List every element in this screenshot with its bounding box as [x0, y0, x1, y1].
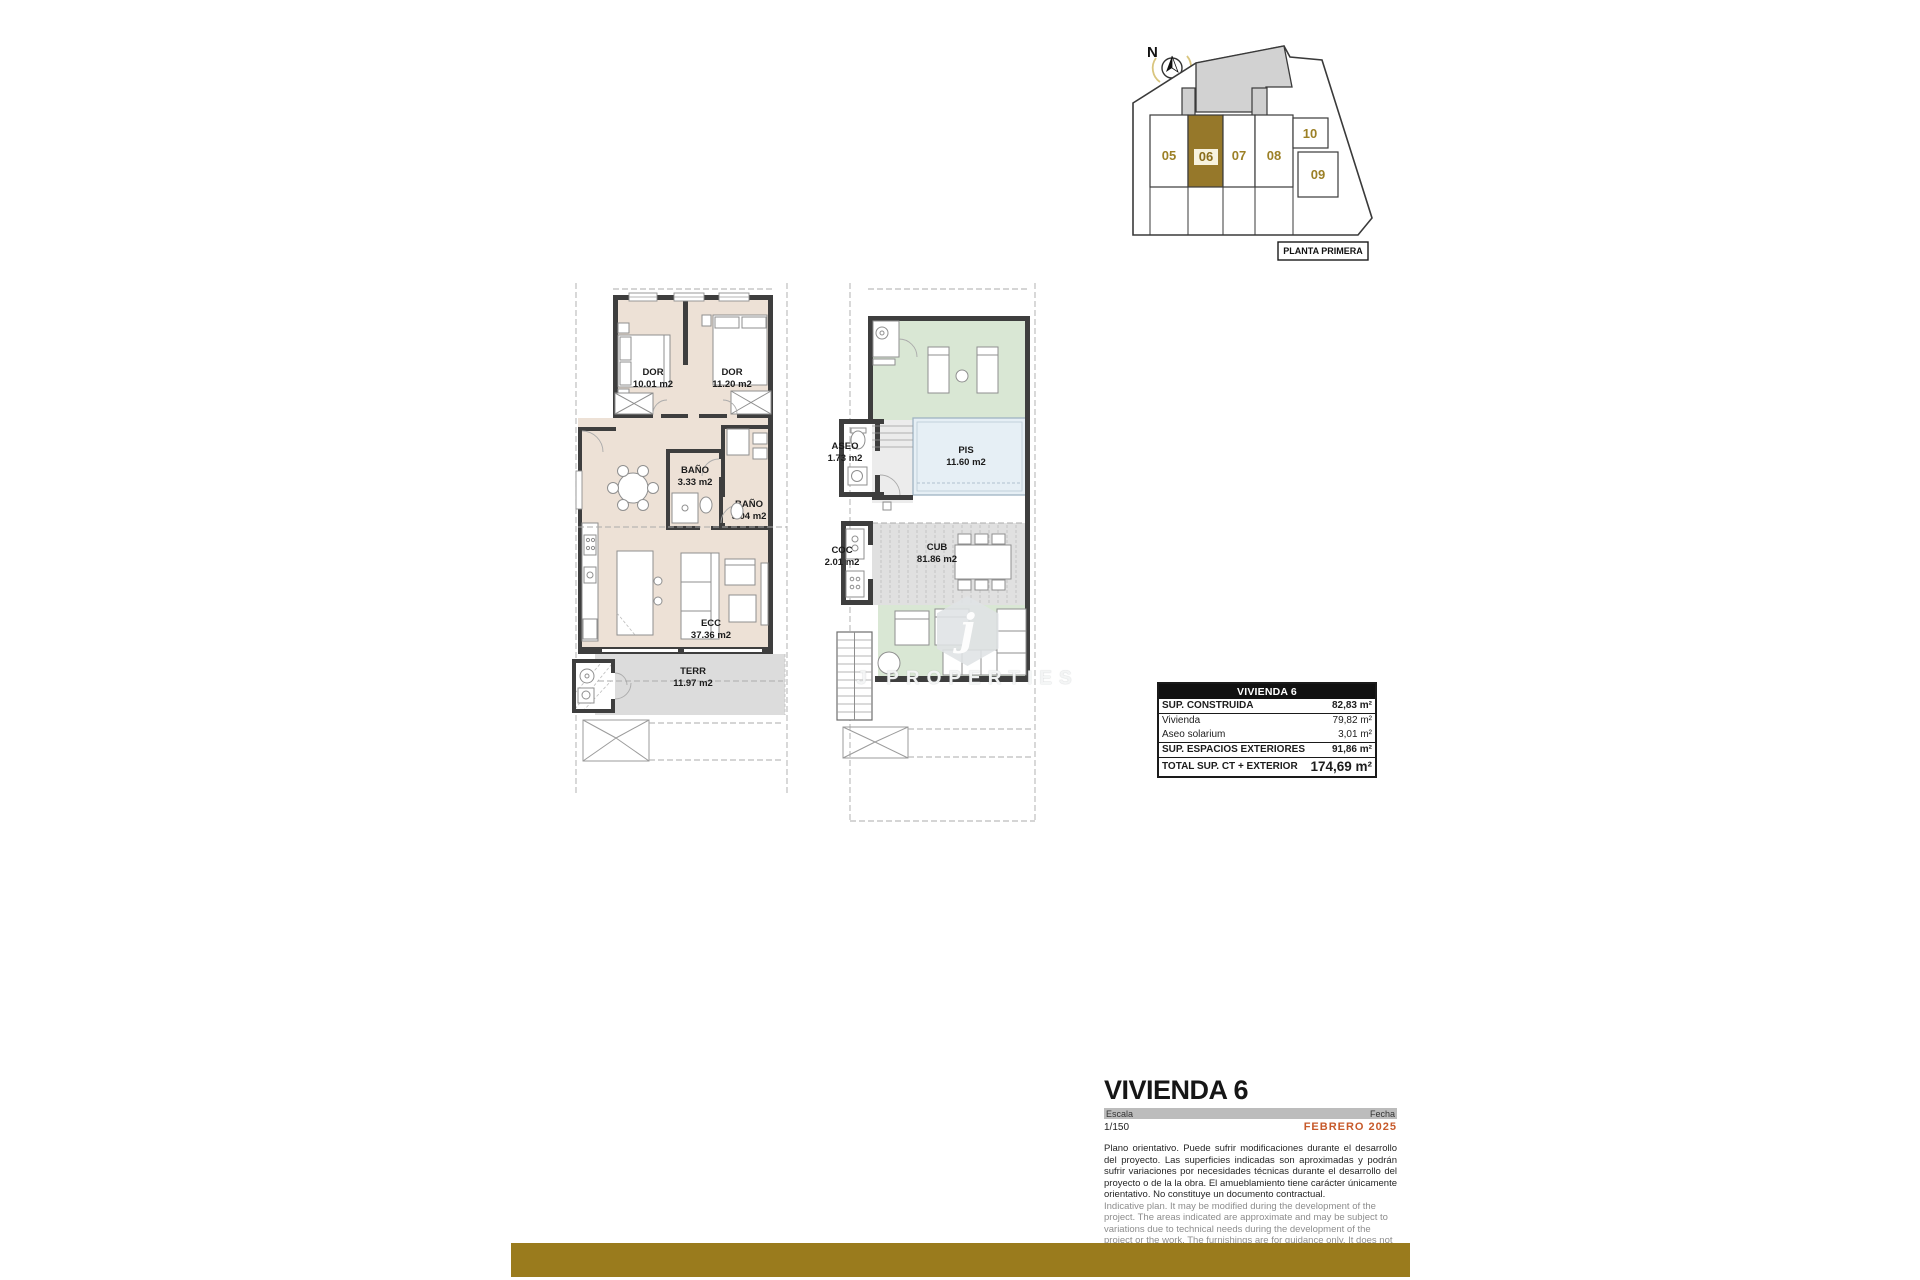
lounge-furniture — [878, 609, 1026, 675]
row-value: 3,01 m² — [1338, 729, 1372, 741]
scale-value: 1/150 — [1104, 1122, 1129, 1133]
floor-plan-level-1: DOR 10.01 m2 DOR 11.20 m2 BAÑO 3.33 m2 B… — [565, 283, 800, 803]
kitchen-counter — [582, 523, 598, 641]
row-label: SUP. ESPACIOS EXTERIORES — [1162, 744, 1305, 756]
row-value: 82,83 m² — [1332, 700, 1372, 712]
table-row: SUP. CONSTRUIDA 82,83 m² — [1159, 699, 1375, 714]
svg-text:10.01 m2: 10.01 m2 — [633, 379, 673, 390]
svg-text:1.73 m2: 1.73 m2 — [828, 453, 863, 464]
table-row: SUP. ESPACIOS EXTERIORES 91,86 m² — [1159, 743, 1375, 758]
svg-text:BAÑO: BAÑO — [681, 465, 709, 476]
keyplan-caption: PLANTA PRIMERA — [1283, 246, 1363, 256]
room-label-aseo: ASEO 1.73 m2 — [828, 441, 863, 464]
svg-text:ASEO: ASEO — [832, 441, 859, 452]
row-label: Aseo solarium — [1162, 729, 1225, 741]
date-value: FEBRERO 2025 — [1304, 1121, 1397, 1133]
unit-09-label: 09 — [1311, 167, 1325, 182]
document-page: N 05 06 07 08 09 10 — [0, 0, 1920, 1280]
svg-text:11.97 m2: 11.97 m2 — [673, 678, 713, 689]
area-summary-table: VIVIENDA 6 SUP. CONSTRUIDA 82,83 m² Vivi… — [1157, 682, 1377, 778]
scale-label: Escala — [1106, 1109, 1133, 1119]
table-row-total: TOTAL SUP. CT + EXTERIOR 174,69 m² — [1159, 758, 1375, 776]
roof-outline — [583, 720, 649, 761]
date-label: Fecha — [1370, 1109, 1395, 1119]
footer-accent-bar — [511, 1243, 1410, 1277]
unit-07-label: 07 — [1232, 148, 1246, 163]
disclaimer: Plano orientativo. Puede sufrir modifica… — [1104, 1143, 1397, 1258]
svg-text:11.20 m2: 11.20 m2 — [712, 379, 752, 390]
unit-05-label: 05 — [1162, 148, 1176, 163]
area-table-header: VIVIENDA 6 — [1159, 684, 1375, 699]
table-row: Vivienda 79,82 m² — [1159, 714, 1375, 728]
floor-plan-solarium: ASEO 1.73 m2 PIS 11.60 m2 COC 2.01 m2 CU… — [825, 283, 1075, 833]
svg-text:ECC: ECC — [701, 618, 721, 629]
table-row: Aseo solarium 3,01 m² — [1159, 728, 1375, 743]
row-label: TOTAL SUP. CT + EXTERIOR — [1162, 761, 1298, 773]
room-label-bano1: BAÑO 3.33 m2 — [678, 465, 713, 488]
svg-text:3.33 m2: 3.33 m2 — [678, 477, 713, 488]
row-value: 91,86 m² — [1332, 744, 1372, 756]
row-value: 174,69 m² — [1310, 761, 1372, 773]
row-label: SUP. CONSTRUIDA — [1162, 700, 1254, 712]
svg-text:COC: COC — [831, 545, 852, 556]
unit-06-label: 06 — [1199, 149, 1213, 164]
roof-outline — [843, 727, 908, 758]
disclaimer-spanish: Plano orientativo. Puede sufrir modifica… — [1104, 1143, 1397, 1201]
svg-text:37.36 m2: 37.36 m2 — [691, 630, 731, 641]
unit-08-label: 08 — [1267, 148, 1281, 163]
row-value: 79,82 m² — [1333, 715, 1372, 727]
scale-date-bar: Escala Fecha — [1104, 1108, 1397, 1119]
key-plan: N 05 06 07 08 09 10 — [1120, 30, 1410, 270]
svg-text:11.60 m2: 11.60 m2 — [946, 457, 986, 468]
scale-date-values: 1/150 FEBRERO 2025 — [1104, 1121, 1397, 1133]
svg-text:DOR: DOR — [642, 367, 663, 378]
svg-text:CUB: CUB — [927, 542, 948, 553]
outdoor-dining-table — [955, 534, 1011, 590]
svg-text:81.86 m2: 81.86 m2 — [917, 554, 957, 565]
sheet-title: VIVIENDA 6 — [1104, 1076, 1397, 1104]
stairs — [837, 632, 872, 720]
unit-10-label: 10 — [1303, 126, 1317, 141]
svg-text:PIS: PIS — [958, 445, 973, 456]
wardrobe — [615, 393, 653, 414]
svg-text:TERR: TERR — [680, 666, 706, 677]
title-block: VIVIENDA 6 Escala Fecha 1/150 FEBRERO 20… — [1104, 1076, 1397, 1258]
svg-text:2.01 m2: 2.01 m2 — [825, 557, 859, 568]
row-label: Vivienda — [1162, 715, 1200, 727]
svg-text:DOR: DOR — [721, 367, 742, 378]
